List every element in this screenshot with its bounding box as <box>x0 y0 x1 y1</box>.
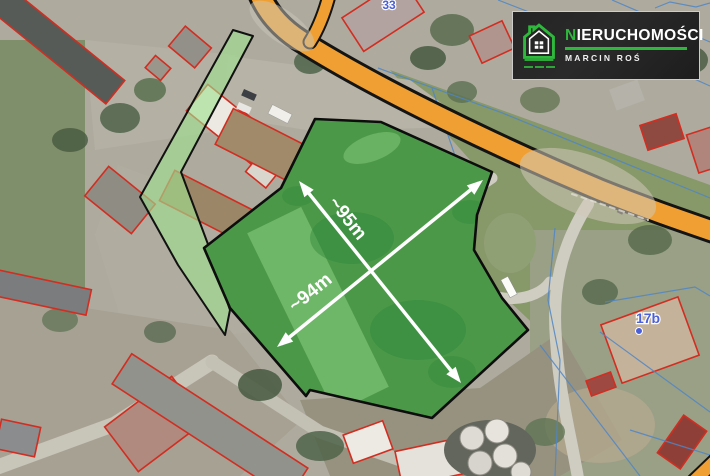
house-number-17b: 17b <box>636 310 660 326</box>
agency-logo: NIERUCHOMOŚCI MARCIN ROŚ <box>512 11 700 80</box>
logo-underline <box>565 47 687 50</box>
logo-brand-rest: IERUCHOMOŚCI <box>577 27 704 44</box>
logo-tagline-marks <box>524 66 555 68</box>
listing-image: ~95m ~94m 33 17b NIERUCHOMOŚCI MARCIN RO… <box>0 0 710 476</box>
logo-brand-name: NIERUCHOMOŚCI <box>565 28 704 44</box>
address-marker-dot <box>636 328 643 335</box>
logo-brand-initial: N <box>565 27 577 44</box>
house-number-33: 33 <box>382 0 396 12</box>
logo-person-name: MARCIN ROŚ <box>565 53 704 63</box>
house-icon <box>522 23 556 63</box>
